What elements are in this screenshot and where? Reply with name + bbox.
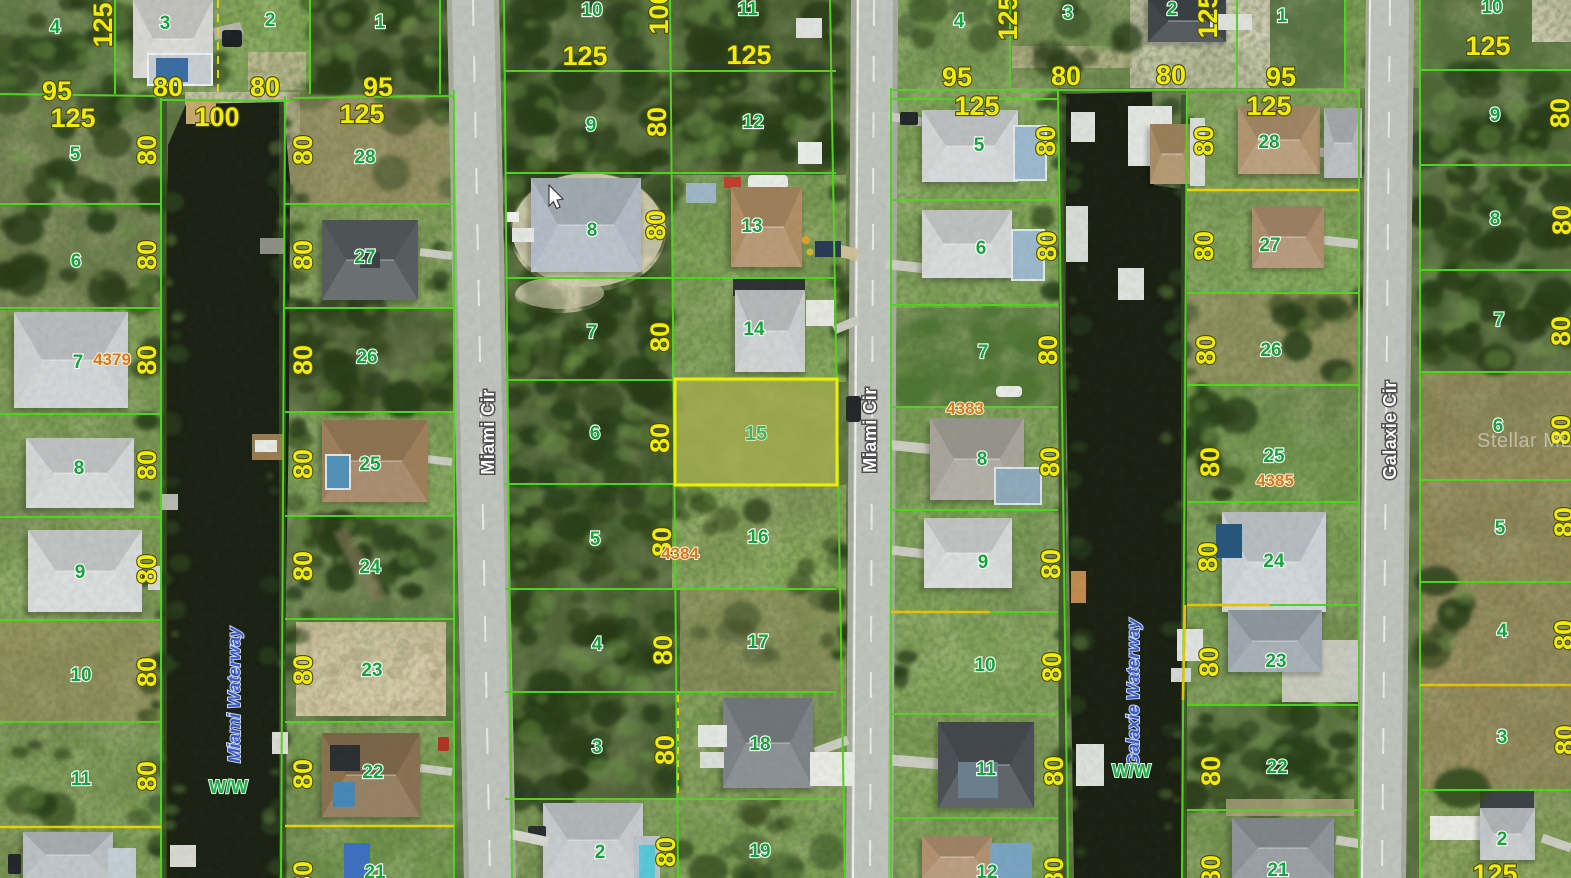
svg-text:17: 17 [747, 632, 768, 653]
svg-text:80: 80 [645, 423, 675, 453]
svg-text:6: 6 [590, 423, 601, 444]
svg-text:2: 2 [1167, 0, 1178, 20]
svg-text:16: 16 [747, 527, 768, 548]
svg-text:80: 80 [132, 761, 162, 791]
svg-text:80: 80 [1033, 335, 1063, 365]
svg-text:80: 80 [1156, 60, 1186, 90]
svg-text:80: 80 [1035, 447, 1065, 477]
svg-text:5: 5 [1495, 518, 1506, 539]
svg-text:80: 80 [288, 449, 318, 479]
svg-text:11: 11 [71, 769, 92, 790]
svg-text:80: 80 [132, 135, 162, 165]
svg-text:8: 8 [1490, 209, 1501, 230]
svg-text:100: 100 [644, 0, 674, 35]
svg-text:80: 80 [288, 759, 318, 789]
svg-text:100: 100 [194, 102, 239, 132]
svg-text:10: 10 [974, 655, 995, 676]
svg-text:23: 23 [1265, 651, 1286, 672]
svg-text:80: 80 [288, 345, 318, 375]
svg-text:3: 3 [592, 737, 603, 758]
svg-text:80: 80 [1039, 756, 1069, 786]
svg-text:8: 8 [587, 220, 598, 241]
svg-text:80: 80 [132, 554, 162, 584]
svg-text:8: 8 [74, 458, 85, 479]
svg-text:80: 80 [1550, 725, 1571, 755]
svg-text:80: 80 [651, 837, 681, 867]
svg-text:80: 80 [650, 735, 680, 765]
svg-text:1: 1 [375, 12, 386, 33]
svg-text:13: 13 [741, 216, 762, 237]
svg-text:125: 125 [1472, 859, 1517, 878]
svg-text:125: 125 [954, 91, 999, 121]
svg-text:24: 24 [359, 557, 381, 578]
svg-text:26: 26 [356, 347, 377, 368]
svg-text:80: 80 [1031, 126, 1061, 156]
svg-text:80: 80 [641, 210, 671, 240]
svg-text:80: 80 [1039, 857, 1069, 878]
svg-text:80: 80 [1051, 61, 1081, 91]
svg-text:125: 125 [1193, 0, 1223, 39]
svg-text:9: 9 [586, 115, 597, 136]
svg-text:2: 2 [265, 10, 276, 31]
svg-text:95: 95 [42, 76, 72, 106]
svg-text:80: 80 [1549, 507, 1571, 537]
svg-text:4: 4 [592, 634, 603, 655]
svg-text:80: 80 [153, 72, 183, 102]
svg-text:80: 80 [288, 861, 318, 878]
svg-text:9: 9 [75, 562, 86, 583]
svg-text:7: 7 [1494, 310, 1505, 331]
svg-text:125: 125 [339, 99, 384, 129]
svg-text:7: 7 [73, 352, 84, 373]
svg-text:22: 22 [362, 762, 383, 783]
svg-text:24: 24 [1263, 551, 1285, 572]
svg-text:9: 9 [978, 552, 989, 573]
svg-text:4384: 4384 [661, 544, 699, 563]
svg-text:80: 80 [1189, 231, 1219, 261]
svg-text:4: 4 [1497, 621, 1508, 642]
svg-text:27: 27 [1259, 235, 1280, 256]
svg-text:26: 26 [1260, 340, 1281, 361]
svg-text:125: 125 [562, 41, 607, 71]
svg-text:28: 28 [354, 147, 375, 168]
svg-text:80: 80 [1189, 126, 1219, 156]
svg-text:4385: 4385 [1256, 471, 1294, 490]
svg-text:Galaxie Cir: Galaxie Cir [1380, 380, 1400, 480]
svg-text:5: 5 [590, 529, 601, 550]
svg-text:80: 80 [1549, 620, 1571, 650]
svg-text:6: 6 [976, 238, 987, 259]
svg-text:Miami Cir: Miami Cir [478, 389, 498, 475]
svg-text:10: 10 [1481, 0, 1502, 18]
svg-text:12: 12 [742, 112, 763, 133]
svg-text:8: 8 [977, 449, 988, 470]
svg-text:80: 80 [250, 72, 280, 102]
svg-text:125: 125 [1465, 31, 1510, 61]
svg-text:80: 80 [1547, 205, 1571, 235]
svg-text:80: 80 [1036, 549, 1066, 579]
svg-text:125: 125 [726, 40, 771, 70]
svg-text:5: 5 [974, 135, 985, 156]
svg-text:10: 10 [581, 0, 602, 21]
svg-text:15: 15 [745, 423, 767, 445]
svg-text:2: 2 [1497, 829, 1508, 850]
svg-text:19: 19 [749, 841, 770, 862]
svg-text:4383: 4383 [946, 399, 984, 418]
svg-text:80: 80 [132, 450, 162, 480]
svg-text:21: 21 [364, 862, 386, 878]
svg-text:3: 3 [1497, 727, 1508, 748]
svg-text:Miami Cir: Miami Cir [860, 387, 880, 473]
svg-text:80: 80 [1037, 652, 1067, 682]
svg-text:Stellar MLS: Stellar MLS [1477, 430, 1571, 452]
svg-text:10: 10 [70, 665, 91, 686]
svg-text:80: 80 [288, 551, 318, 581]
svg-text:4: 4 [50, 17, 61, 38]
svg-text:80: 80 [288, 135, 318, 165]
svg-text:80: 80 [288, 240, 318, 270]
svg-text:12: 12 [976, 862, 997, 878]
svg-text:4: 4 [954, 11, 965, 32]
svg-text:80: 80 [1193, 542, 1223, 572]
svg-text:80: 80 [1546, 316, 1571, 346]
svg-text:3: 3 [1063, 3, 1074, 24]
svg-text:80: 80 [1196, 756, 1226, 786]
svg-text:18: 18 [749, 734, 770, 755]
svg-text:80: 80 [642, 107, 672, 137]
svg-text:7: 7 [587, 322, 598, 343]
svg-text:80: 80 [1195, 447, 1225, 477]
svg-text:11: 11 [976, 759, 997, 780]
svg-text:80: 80 [645, 322, 675, 352]
svg-text:1: 1 [1277, 6, 1288, 27]
svg-text:80: 80 [648, 635, 678, 665]
svg-text:25: 25 [359, 454, 381, 475]
svg-text:80: 80 [1032, 231, 1062, 261]
svg-text:9: 9 [1490, 105, 1501, 126]
svg-text:95: 95 [363, 72, 393, 102]
svg-text:125: 125 [1246, 91, 1291, 121]
svg-text:W/W: W/W [1112, 761, 1151, 781]
svg-text:80: 80 [1191, 335, 1221, 365]
svg-text:W/W: W/W [209, 777, 248, 797]
svg-text:7: 7 [978, 342, 989, 363]
svg-text:3: 3 [160, 13, 171, 34]
svg-text:80: 80 [132, 240, 162, 270]
svg-text:25: 25 [1263, 446, 1285, 467]
svg-text:80: 80 [1194, 647, 1224, 677]
svg-text:27: 27 [354, 247, 375, 268]
svg-text:80: 80 [132, 345, 162, 375]
svg-text:125: 125 [993, 0, 1023, 41]
svg-text:95: 95 [942, 62, 972, 92]
svg-text:Miami Waterway: Miami Waterway [224, 626, 244, 763]
svg-text:80: 80 [132, 657, 162, 687]
svg-text:21: 21 [1267, 860, 1289, 878]
svg-text:80: 80 [1196, 855, 1226, 878]
svg-text:4379: 4379 [93, 350, 131, 369]
svg-text:11: 11 [738, 0, 759, 20]
svg-text:125: 125 [88, 2, 118, 47]
svg-text:125: 125 [50, 103, 95, 133]
svg-text:Galaxie Waterway: Galaxie Waterway [1123, 617, 1143, 767]
svg-text:23: 23 [361, 660, 382, 681]
svg-text:2: 2 [595, 842, 606, 863]
svg-text:95: 95 [1266, 62, 1296, 92]
svg-text:6: 6 [71, 251, 82, 272]
svg-text:80: 80 [1545, 98, 1571, 128]
svg-text:14: 14 [743, 319, 765, 340]
svg-text:28: 28 [1258, 132, 1279, 153]
svg-text:80: 80 [288, 655, 318, 685]
svg-text:22: 22 [1266, 757, 1287, 778]
svg-text:5: 5 [70, 144, 81, 165]
